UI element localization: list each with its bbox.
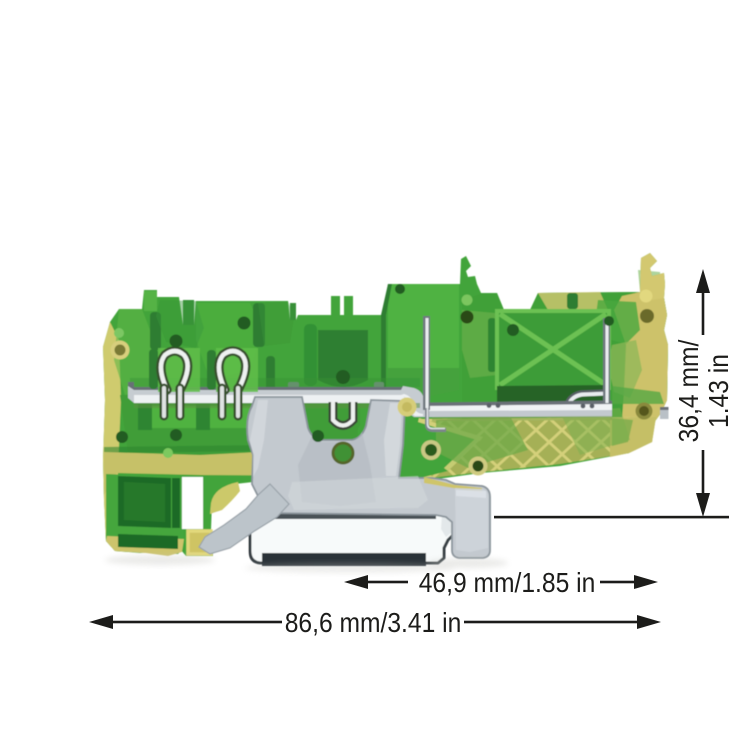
svg-text:1.43 in: 1.43 in xyxy=(703,354,735,428)
svg-text:86,6 mm/3.41 in: 86,6 mm/3.41 in xyxy=(285,607,462,639)
svg-text:46,9 mm/1.85 in: 46,9 mm/1.85 in xyxy=(419,567,596,599)
svg-text:36,4 mm/: 36,4 mm/ xyxy=(673,339,705,442)
